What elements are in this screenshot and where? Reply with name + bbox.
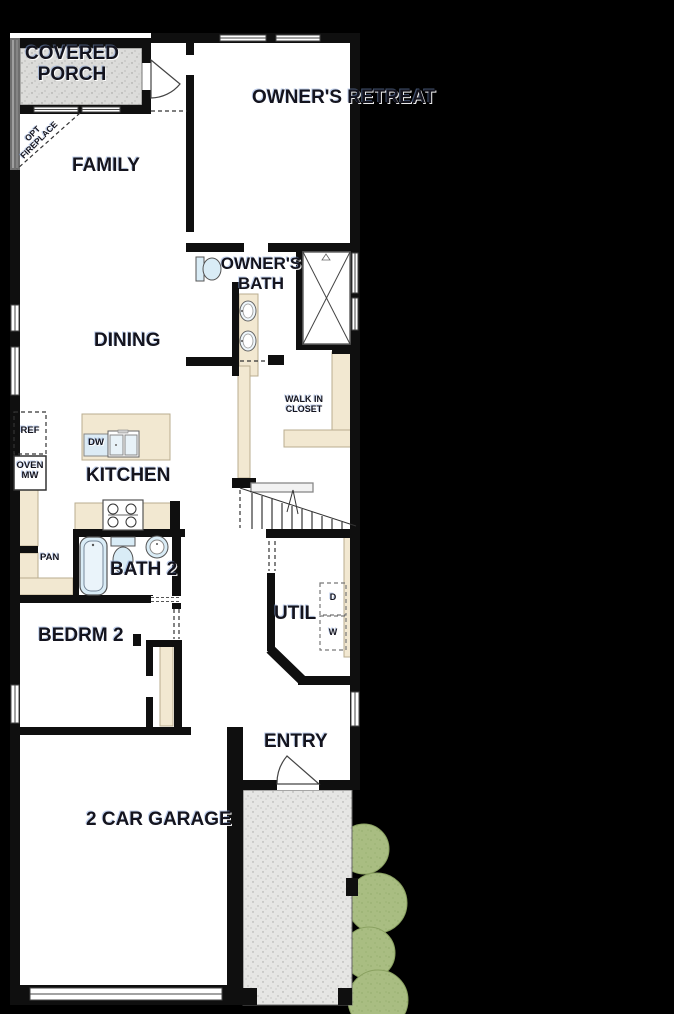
room-label-utility: UTIL bbox=[274, 604, 316, 625]
appliance-label-washer: W bbox=[320, 627, 346, 637]
bath2-sink-icon bbox=[146, 536, 168, 558]
appliance-label-dw: DW bbox=[84, 438, 108, 448]
room-label-kitchen: KITCHEN bbox=[86, 466, 170, 487]
appliance-label-mw: MW bbox=[14, 471, 46, 481]
kitchen-sink-icon bbox=[108, 430, 139, 457]
appliance-label-oven-mw: OVENMW bbox=[14, 461, 46, 482]
floor-plan-drawing bbox=[0, 0, 674, 1014]
room-label-entry: ENTRY bbox=[264, 732, 328, 753]
front-walkway bbox=[243, 790, 352, 1005]
room-label-garage: 2 CAR GARAGE bbox=[86, 810, 232, 831]
shower-icon bbox=[303, 252, 350, 344]
room-label-bath-2: BATH 2 bbox=[110, 560, 177, 581]
floor-plan-canvas: COVERED PORCH OWNER'S RETREAT FAMILY OPT… bbox=[0, 0, 674, 1014]
room-label-dining: DINING bbox=[94, 331, 161, 352]
room-label-walk-in-closet: WALK IN CLOSET bbox=[272, 394, 336, 414]
room-label-covered-porch: COVERED PORCH bbox=[12, 44, 132, 85]
bath2-tub-icon bbox=[80, 537, 107, 595]
room-label-family: FAMILY bbox=[72, 156, 140, 177]
room-label-bedroom-2: BEDRM 2 bbox=[38, 626, 124, 647]
room-label-owners-retreat: OWNER'S RETREAT bbox=[252, 88, 436, 109]
appliance-label-dryer: D bbox=[320, 592, 346, 602]
bath2-door-dashes bbox=[151, 596, 181, 603]
room-label-owners-bath: OWNER'S BATH bbox=[216, 254, 306, 294]
appliance-label-ref: REF bbox=[14, 426, 46, 436]
stove-icon bbox=[103, 500, 143, 530]
room-label-pantry: PAN bbox=[40, 553, 59, 563]
